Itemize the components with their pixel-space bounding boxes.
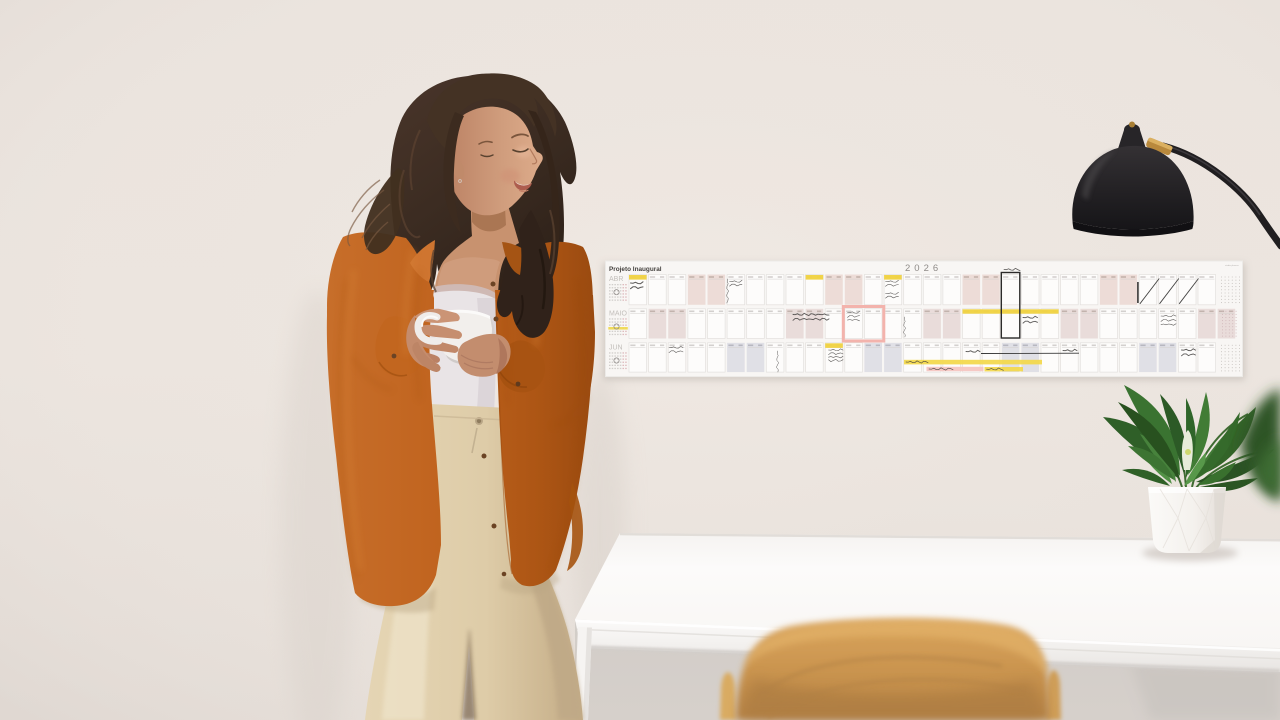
svg-text:studio planner: studio planner (1225, 264, 1239, 267)
svg-text:2026: 2026 (905, 263, 942, 274)
svg-text:ABR: ABR (609, 276, 623, 283)
svg-text:JUN: JUN (609, 344, 623, 351)
svg-text:MAIO: MAIO (609, 310, 627, 317)
svg-text:Projeto Inaugural: Projeto Inaugural (609, 266, 662, 273)
